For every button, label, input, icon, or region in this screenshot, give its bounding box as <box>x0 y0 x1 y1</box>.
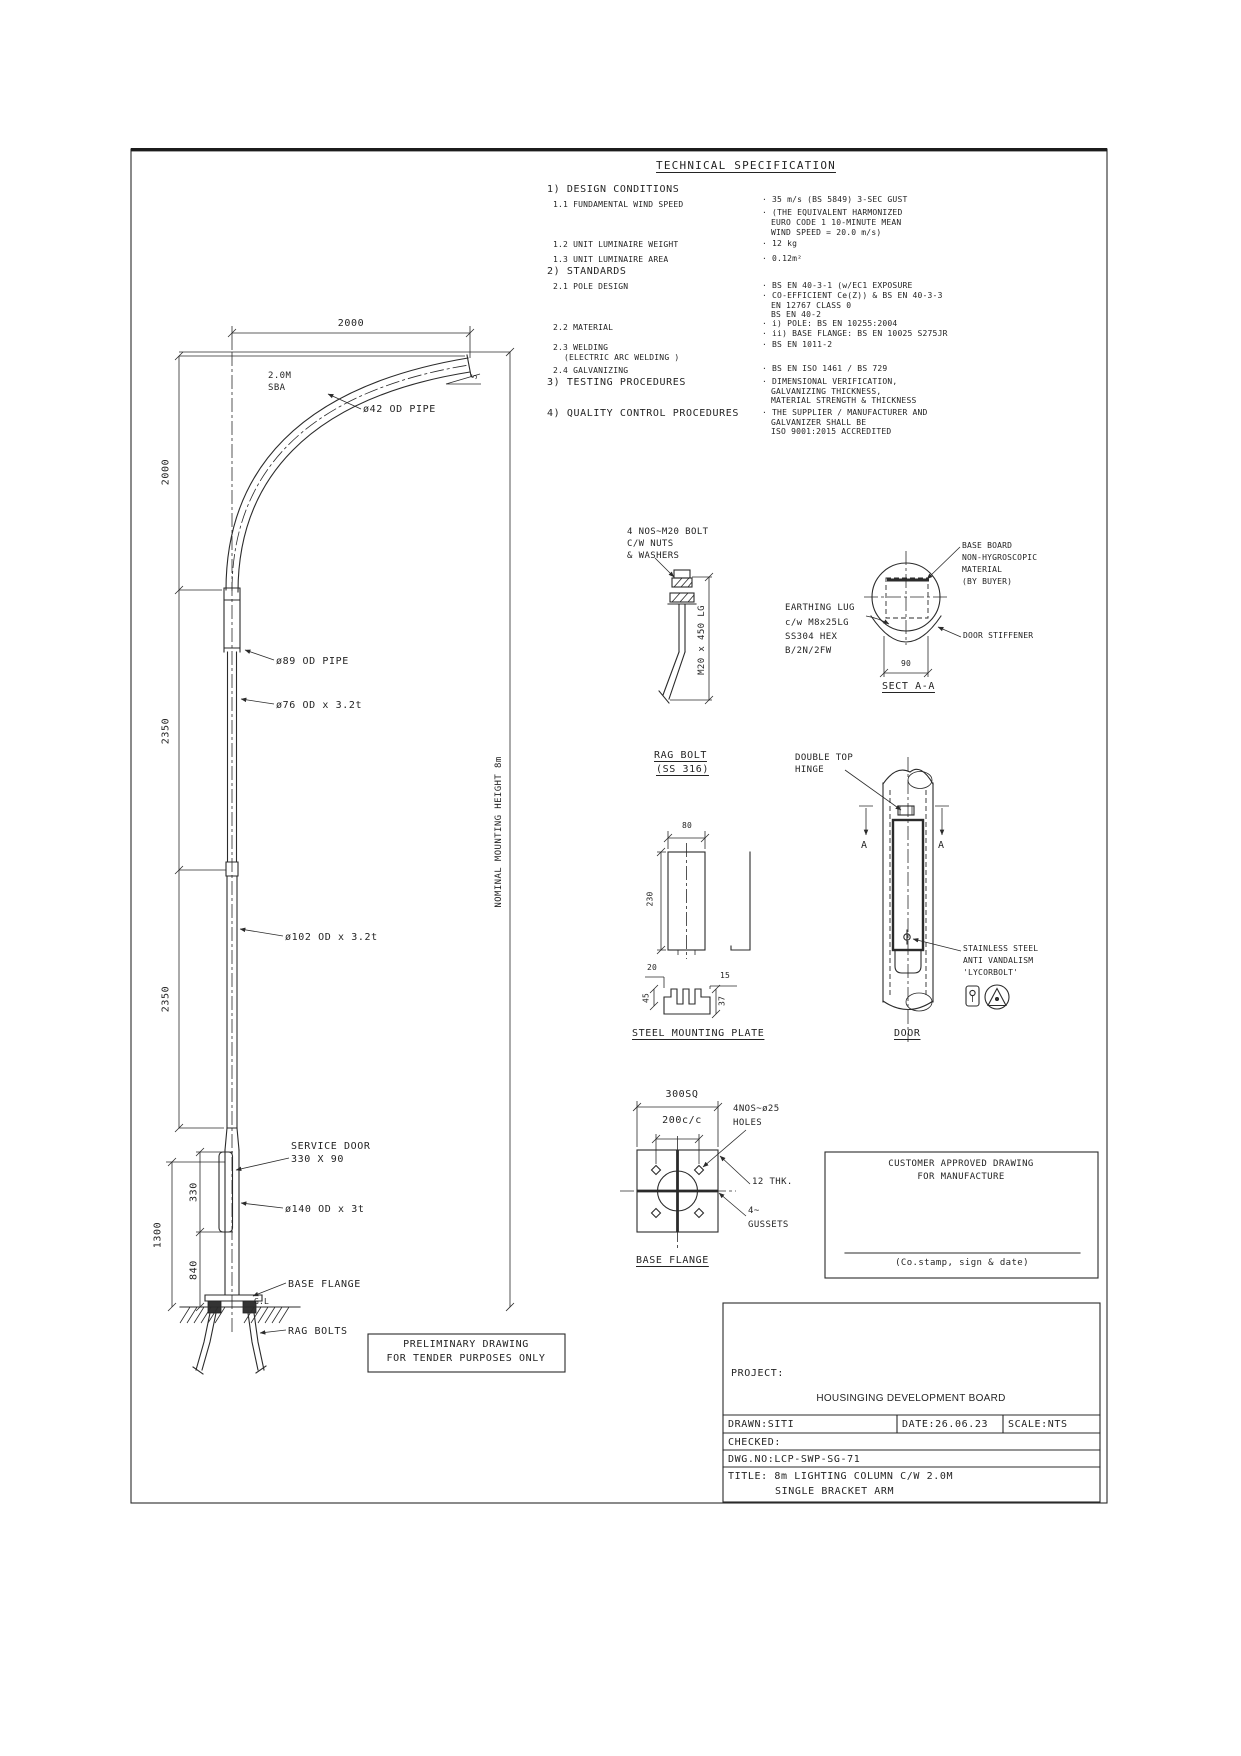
baseboard-line2: NON-HYGROSCOPIC <box>962 553 1037 562</box>
spec-r21-v3: EN 12767 CLASS 0 <box>771 301 851 310</box>
spec-r13-value: · 0.12m² <box>762 254 802 263</box>
door-detail-linework <box>845 757 1009 1042</box>
spec-r11-v4: WIND SPEED = 20.0 m/s) <box>771 228 881 237</box>
lycorbolt-line1: STAINLESS STEEL <box>963 944 1038 953</box>
spec-r21-v1: · BS EN 40-3-1 (w/EC1 EXPOSURE <box>762 281 913 290</box>
customer-box-line2: FOR MANUFACTURE <box>917 1172 1004 1182</box>
sect-aa-dim-90: 90 <box>901 659 911 668</box>
section-marker-a-left: A <box>861 840 868 852</box>
sect-aa-linework <box>864 547 961 677</box>
callout-rag-bolts: RAG BOLTS <box>288 1326 348 1338</box>
spec-r4-v1: · THE SUPPLIER / MANUFACTURER AND <box>762 408 928 417</box>
dim-2000-top: 2000 <box>338 318 364 330</box>
label-ground-level: G.L <box>254 1297 269 1306</box>
spec-r12-value: · 12 kg <box>762 239 797 248</box>
spec-r11-v2: · (THE EQUIVALENT HARMONIZED <box>762 208 902 217</box>
label-sba-length: 2.0M <box>268 371 291 381</box>
door-stiffener-label: DOOR STIFFENER <box>963 631 1033 640</box>
callout-phi89: ø89 OD PIPE <box>276 656 349 668</box>
titleblock-project-label: PROJECT: <box>731 1368 784 1380</box>
dim-330: 330 <box>188 1182 200 1202</box>
plate-dim-230: 230 <box>645 891 654 906</box>
flange-dim-300sq: 300SQ <box>665 1089 698 1101</box>
flange-gussets-line1: 4~ <box>748 1206 760 1216</box>
titleblock-scale: SCALE:NTS <box>1008 1419 1068 1431</box>
spec-r21-v2: · CO-EFFICIENT Ce(Z)) & BS EN 40-3-3 <box>762 291 943 300</box>
spec-r12-label: 1.2 UNIT LUMINAIRE WEIGHT <box>553 240 678 249</box>
spec-r22-v2: · ii) BASE FLANGE: BS EN 10025 S275JR <box>762 329 948 338</box>
ragbolt-dim: M20 x 450 LG <box>697 605 707 675</box>
earthing-lug-line1: EARTHING LUG <box>785 603 855 613</box>
spec-r11-v3: EURO CODE 1 10-MINUTE MEAN <box>771 218 901 227</box>
spec-r22-label: 2.2 MATERIAL <box>553 323 613 332</box>
callout-service-door-size: 330 X 90 <box>291 1154 344 1166</box>
spec-r13-label: 1.3 UNIT LUMINAIRE AREA <box>553 255 668 264</box>
flange-holes-line2: HOLES <box>733 1118 762 1128</box>
plate-dim-20: 20 <box>647 963 657 972</box>
sheet-frame <box>131 148 1107 1503</box>
spec-r24-value: · BS EN ISO 1461 / BS 729 <box>762 364 887 373</box>
spec-r23-value: · BS EN 1011-2 <box>762 340 832 349</box>
pole-elevation-linework <box>166 326 514 1374</box>
callout-phi76: ø76 OD x 3.2t <box>276 700 362 712</box>
label-nominal-mounting-height: NOMINAL MOUNTING HEIGHT 8m <box>494 756 504 907</box>
spec-r3-v3: MATERIAL STRENGTH & THICKNESS <box>771 396 916 405</box>
titleblock-title-line1: TITLE: 8m LIGHTING COLUMN C/W 2.0M <box>728 1471 953 1483</box>
titleblock-project-value: HOUSINGING DEVELOPMENT BOARD <box>816 1393 1005 1405</box>
double-top-hinge-line2: HINGE <box>795 765 824 775</box>
callout-base-flange: BASE FLANGE <box>288 1279 361 1291</box>
baseboard-line3: MATERIAL <box>962 565 1002 574</box>
mounting-plate-linework <box>645 831 750 1018</box>
plate-dim-45: 45 <box>641 993 650 1003</box>
base-flange-title: BASE FLANGE <box>636 1255 709 1267</box>
section-marker-a-right: A <box>938 840 945 852</box>
spec-r21-label: 2.1 POLE DESIGN <box>553 282 628 291</box>
dim-1300: 1300 <box>152 1222 164 1248</box>
lycorbolt-line3: 'LYCORBOLT' <box>963 968 1018 977</box>
spec-r11-label: 1.1 FUNDAMENTAL WIND SPEED <box>553 200 683 209</box>
ragbolt-callout-line3: & WASHERS <box>627 551 679 561</box>
spec-h1: 1) DESIGN CONDITIONS <box>547 184 679 196</box>
plate-dim-15: 15 <box>720 971 730 980</box>
mounting-plate-title: STEEL MOUNTING PLATE <box>632 1028 764 1040</box>
spec-r11-v1: · 35 m/s (BS 5849) 3-SEC GUST <box>762 195 907 204</box>
dim-2000-left: 2000 <box>160 459 172 485</box>
plate-dim-37: 37 <box>717 996 726 1006</box>
ragbolt-callout-line1: 4 NOS~M20 BOLT <box>627 527 708 537</box>
spec-r3-v2: GALVANIZING THICKNESS, <box>771 387 881 396</box>
flange-dim-200cc: 200c/c <box>662 1115 702 1127</box>
sect-aa-title: SECT A-A <box>882 681 935 693</box>
spec-r4-v3: ISO 9001:2015 ACCREDITED <box>771 427 891 436</box>
baseboard-line1: BASE BOARD <box>962 541 1012 550</box>
dim-2350-upper: 2350 <box>160 718 172 744</box>
callout-arm-pipe: ø42 OD PIPE <box>363 404 436 416</box>
spec-r3-v1: · DIMENSIONAL VERIFICATION, <box>762 377 897 386</box>
flange-thickness-label: 12 THK. <box>752 1177 793 1187</box>
spec-r21-v4: BS EN 40-2 <box>771 310 821 319</box>
baseboard-line4: (BY BUYER) <box>962 577 1012 586</box>
dim-840: 840 <box>188 1260 200 1280</box>
spec-r22-v1: · i) POLE: BS EN 10255:2004 <box>762 319 897 328</box>
ragbolt-grade: (SS 316) <box>656 764 709 776</box>
titleblock-checked: CHECKED: <box>728 1437 781 1449</box>
plate-dim-80: 80 <box>682 821 692 830</box>
titleblock-date: DATE:26.06.23 <box>902 1419 988 1431</box>
customer-box-line1: CUSTOMER APPROVED DRAWING <box>888 1159 1033 1169</box>
spec-r24-label: 2.4 GALVANIZING <box>553 366 628 375</box>
spec-r23-label-b: (ELECTRIC ARC WELDING ) <box>564 353 679 362</box>
earthing-lug-line2: c/w M8x25LG <box>785 618 849 628</box>
flange-holes-line1: 4NOS~ø25 <box>733 1104 780 1114</box>
flange-gussets-line2: GUSSETS <box>748 1220 789 1230</box>
door-title: DOOR <box>894 1028 920 1040</box>
customer-box-signature-hint: (Co.stamp, sign & date) <box>895 1258 1029 1268</box>
spec-h2: 2) STANDARDS <box>547 266 626 278</box>
preliminary-note-line1: PRELIMINARY DRAWING <box>403 1339 529 1351</box>
titleblock-drawn: DRAWN:SITI <box>728 1419 794 1431</box>
spec-r4-v2: GALVANIZER SHALL BE <box>771 418 866 427</box>
lycorbolt-line2: ANTI VANDALISM <box>963 956 1033 965</box>
double-top-hinge-line1: DOUBLE TOP <box>795 753 853 763</box>
dim-2350-lower: 2350 <box>160 986 172 1012</box>
titleblock-dwg-no: DWG.NO:LCP-SWP-SG-71 <box>728 1454 860 1466</box>
spec-h4: 4) QUALITY CONTROL PROCEDURES <box>547 408 739 420</box>
earthing-lug-line3: SS304 HEX <box>785 632 837 642</box>
callout-phi140: ø140 OD x 3t <box>285 1204 364 1216</box>
ragbolt-callout-line2: C/W NUTS <box>627 539 674 549</box>
spec-h3: 3) TESTING PROCEDURES <box>547 377 686 389</box>
callout-phi102: ø102 OD x 3.2t <box>285 932 378 944</box>
titleblock-title-line2: SINGLE BRACKET ARM <box>775 1486 894 1498</box>
ragbolt-title: RAG BOLT <box>654 750 707 762</box>
preliminary-note-line2: FOR TENDER PURPOSES ONLY <box>387 1353 546 1365</box>
callout-service-door: SERVICE DOOR <box>291 1141 370 1153</box>
label-sba: SBA <box>268 383 285 393</box>
earthing-lug-line4: B/2N/2FW <box>785 646 832 656</box>
spec-title: TECHNICAL SPECIFICATION <box>656 160 836 173</box>
drawing-sheet: TECHNICAL SPECIFICATION 1) DESIGN CONDIT… <box>0 0 1241 1756</box>
spec-r23-label-a: 2.3 WELDING <box>553 343 608 352</box>
